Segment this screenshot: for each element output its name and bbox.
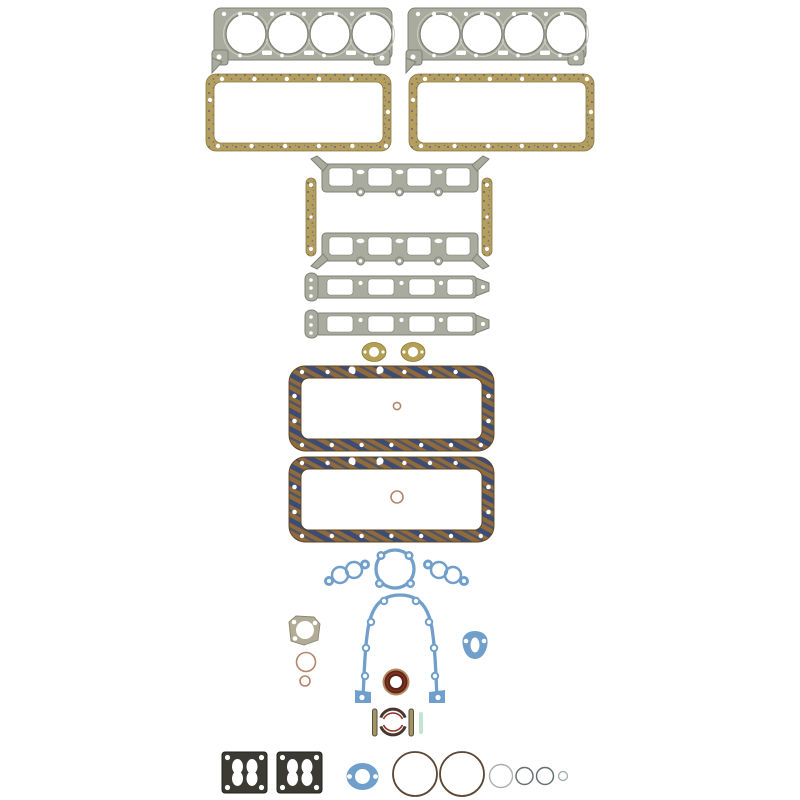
product-photo: Complete engine overhaul gasket set laid… xyxy=(0,0,800,800)
o-ring-large-2 xyxy=(440,752,484,796)
thermostat-housing-gasket xyxy=(289,616,320,645)
port-opening xyxy=(368,279,394,295)
oil-pan-o-ring-1 xyxy=(393,402,400,409)
water-outlet-gasket-1 xyxy=(362,343,386,362)
port-opening xyxy=(409,279,435,295)
rear-main-seal xyxy=(373,709,424,736)
exhaust-manifold-gasket-1 xyxy=(305,273,489,301)
port-opening xyxy=(327,279,353,295)
intake-manifold-gasket-strip xyxy=(322,164,478,196)
port-opening xyxy=(446,168,470,186)
front-crankshaft-seal xyxy=(383,669,410,696)
carburetor-base-gasket-2 xyxy=(277,752,322,793)
exhaust-manifold-gasket-2 xyxy=(305,310,489,338)
bolt-holes xyxy=(208,79,390,146)
o-ring-small-1 xyxy=(516,768,533,785)
cylinder-bore xyxy=(226,14,266,54)
oil-pan-gasket-1 xyxy=(289,366,494,451)
seal-side-strip xyxy=(419,712,423,734)
valve-cover-gasket-right xyxy=(409,74,594,151)
cylinder-bore xyxy=(268,14,308,54)
intake-manifold-gasket-strip-2 xyxy=(322,233,478,265)
bolt-holes xyxy=(292,372,491,445)
carburetor-base-gasket-1 xyxy=(222,752,267,793)
gasket-set-illustration xyxy=(0,0,800,800)
port-opening xyxy=(368,168,392,186)
valve-cover-frame xyxy=(206,74,391,151)
o-ring-medium xyxy=(297,653,316,672)
cylinder-bore xyxy=(352,14,392,54)
water-pump-gasket-left xyxy=(324,560,370,587)
o-ring-tiny xyxy=(559,772,568,781)
rear-main-side-seal-left xyxy=(373,709,378,736)
o-ring-small-2 xyxy=(537,768,554,785)
o-ring-medium xyxy=(490,765,513,788)
intake-end-seal-left xyxy=(306,178,316,256)
o-ring-row xyxy=(393,752,568,796)
cylinder-bore xyxy=(310,14,350,54)
intake-end-seal-right xyxy=(482,178,492,256)
water-pump-gasket-right xyxy=(423,560,469,587)
oil-pan-frame xyxy=(289,366,494,451)
oil-pan-o-ring-2 xyxy=(391,491,403,503)
valve-cover-gasket-left xyxy=(206,74,391,151)
wing-gasket-ring xyxy=(346,562,362,578)
o-ring-large-1 xyxy=(393,752,437,796)
port-opening xyxy=(447,279,473,295)
fuel-pump-mounting-gasket xyxy=(462,631,487,659)
water-outlet-gasket-2 xyxy=(401,343,425,362)
o-ring-small xyxy=(300,676,310,686)
rear-main-side-seal-right xyxy=(409,709,414,736)
mounting-pad-gasket xyxy=(347,763,379,790)
head-gasket-right xyxy=(406,8,589,73)
port-opening xyxy=(407,168,431,186)
water-pump-backing-plate-gasket xyxy=(375,550,415,588)
port-opening xyxy=(329,168,353,186)
head-gasket-left xyxy=(212,8,395,73)
bolt-tabs xyxy=(375,551,415,588)
